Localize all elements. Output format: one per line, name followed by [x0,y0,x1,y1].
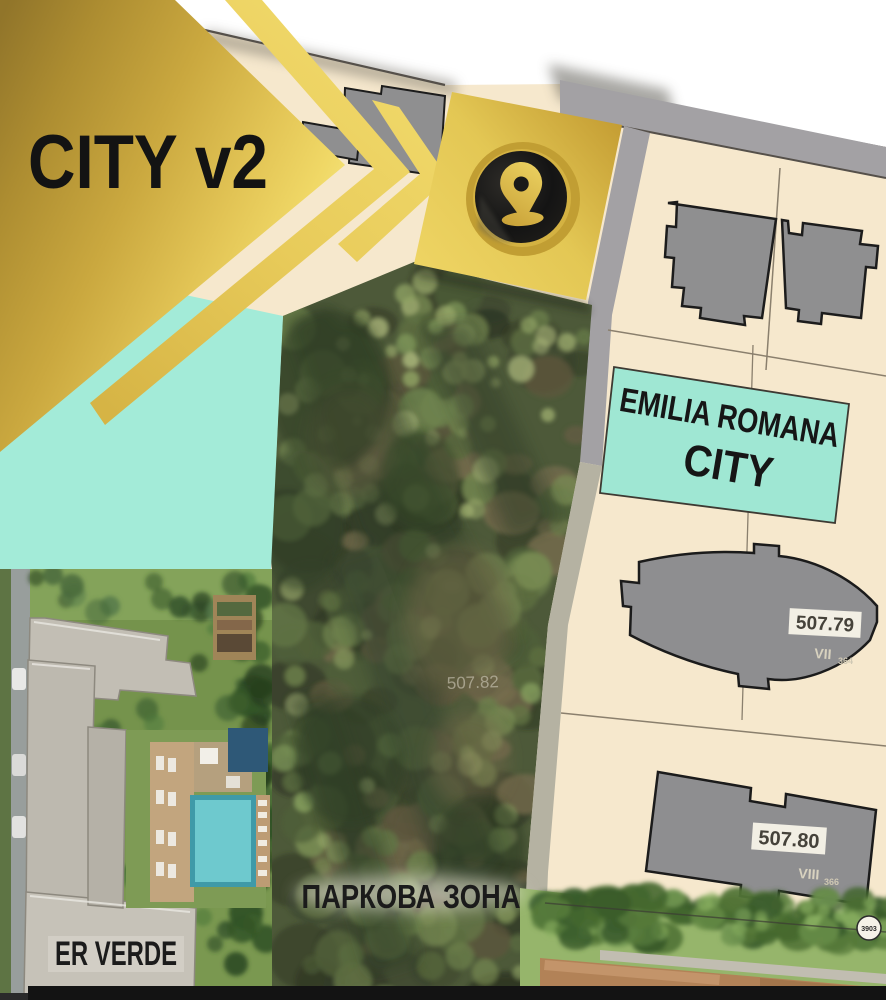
svg-text:ПАРКОВА ЗОНА: ПАРКОВА ЗОНА [302,878,521,915]
svg-text:CITY v2: CITY v2 [28,120,268,205]
svg-text:507.82: 507.82 [446,672,499,693]
svg-text:3903: 3903 [861,926,877,933]
svg-text:507.79: 507.79 [795,612,854,636]
svg-text:507.80: 507.80 [758,827,821,853]
svg-text:364: 364 [838,656,853,666]
svg-text:VII: VII [814,645,832,662]
svg-text:ER VERDE: ER VERDE [55,935,177,973]
svg-text:VIII: VIII [798,865,820,882]
svg-text:366: 366 [824,877,839,887]
